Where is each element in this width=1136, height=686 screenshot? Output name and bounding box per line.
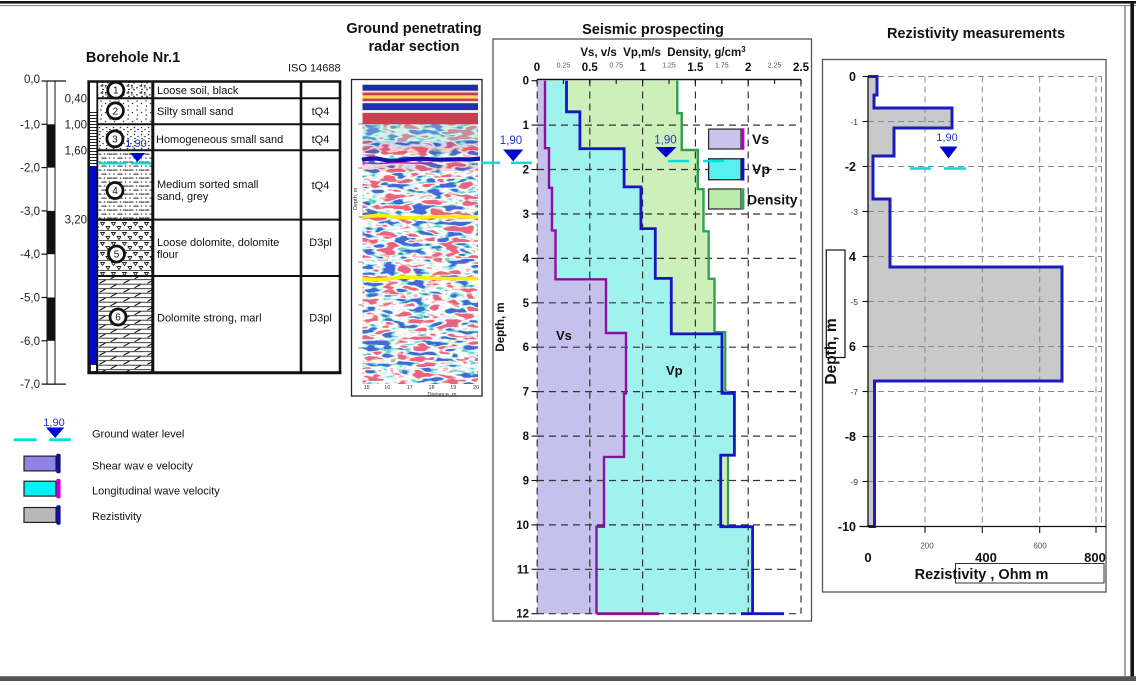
svg-text:1,90: 1,90 <box>500 135 522 147</box>
svg-text:Depth, m: Depth, m <box>353 187 359 210</box>
svg-text:1,90: 1,90 <box>43 417 64 429</box>
svg-text:-1: -1 <box>850 117 858 127</box>
svg-text:0: 0 <box>534 62 540 74</box>
svg-text:Seismic prospecting: Seismic prospecting <box>582 22 724 38</box>
svg-text:Ground penetrating: Ground penetrating <box>346 21 481 37</box>
svg-text:Longitudinal wave velocity: Longitudinal wave velocity <box>92 486 220 498</box>
svg-text:19: 19 <box>450 385 456 391</box>
svg-text:1: 1 <box>523 120 530 132</box>
svg-text:1,60: 1,60 <box>65 145 87 157</box>
svg-text:-9: -9 <box>850 477 858 487</box>
svg-text:15: 15 <box>364 385 370 391</box>
svg-text:2: 2 <box>745 62 751 74</box>
svg-text:2.25: 2.25 <box>768 63 782 70</box>
svg-text:5: 5 <box>114 250 120 261</box>
svg-text:17: 17 <box>407 385 413 391</box>
svg-text:Borehole Nr.1: Borehole Nr.1 <box>86 50 180 66</box>
svg-text:0,40: 0,40 <box>65 93 87 105</box>
svg-text:4: 4 <box>523 253 530 265</box>
svg-text:sand, grey: sand, grey <box>157 191 209 203</box>
svg-text:Ground water level: Ground water level <box>92 429 184 441</box>
svg-text:Distance, m: Distance, m <box>427 392 456 398</box>
svg-text:8: 8 <box>523 431 530 443</box>
svg-text:1.5: 1.5 <box>687 62 704 74</box>
svg-text:16: 16 <box>384 385 390 391</box>
svg-text:Homogeneous small sand: Homogeneous small sand <box>156 134 283 146</box>
svg-text:flour: flour <box>157 249 179 261</box>
svg-text:Vp: Vp <box>752 161 770 177</box>
svg-text:Shear wav e velocity: Shear wav e velocity <box>92 461 193 473</box>
svg-text:4: 4 <box>849 250 856 264</box>
svg-text:3: 3 <box>112 134 118 145</box>
svg-text:-2,0: -2,0 <box>20 163 40 175</box>
svg-text:1,90: 1,90 <box>125 138 146 150</box>
svg-text:Loose dolomite, dolomite: Loose dolomite, dolomite <box>157 237 279 249</box>
svg-text:Depth, m: Depth, m <box>823 318 840 384</box>
svg-text:Medium sorted small: Medium sorted small <box>157 179 258 191</box>
svg-text:1,90: 1,90 <box>936 132 957 144</box>
svg-text:-2: -2 <box>845 160 856 174</box>
svg-text:1,00: 1,00 <box>65 119 87 131</box>
svg-text:0: 0 <box>523 76 529 88</box>
svg-text:6: 6 <box>849 340 856 354</box>
svg-text:10: 10 <box>516 520 529 532</box>
svg-text:400: 400 <box>975 550 997 565</box>
svg-text:D3pl: D3pl <box>309 313 332 325</box>
svg-text:2: 2 <box>113 106 119 117</box>
svg-text:Depth, m: Depth, m <box>495 302 507 351</box>
svg-text:Vs, v/s Vp,m/s Density, g/cm: Vs, v/s Vp,m/s Density, g/cm3 <box>580 45 746 60</box>
svg-text:9: 9 <box>523 476 529 488</box>
svg-text:800: 800 <box>1084 550 1106 565</box>
svg-text:Vs: Vs <box>752 131 769 147</box>
svg-text:7: 7 <box>523 387 529 399</box>
svg-text:600: 600 <box>1033 542 1047 551</box>
svg-text:6: 6 <box>115 313 121 324</box>
svg-text:11: 11 <box>517 564 530 576</box>
svg-text:-8: -8 <box>845 430 856 444</box>
svg-text:6: 6 <box>523 342 529 354</box>
svg-text:0.25: 0.25 <box>557 63 571 70</box>
svg-text:0: 0 <box>864 550 871 565</box>
svg-text:2.5: 2.5 <box>793 62 810 74</box>
svg-text:1: 1 <box>639 62 646 74</box>
svg-text:1.25: 1.25 <box>662 63 676 70</box>
svg-text:-6,0: -6,0 <box>20 336 40 348</box>
svg-text:12: 12 <box>516 609 529 621</box>
svg-text:radar section: radar section <box>368 39 459 55</box>
svg-text:5: 5 <box>523 298 530 310</box>
svg-text:Rezistivity: Rezistivity <box>92 511 142 523</box>
svg-text:-5: -5 <box>850 297 858 307</box>
svg-text:-7: -7 <box>850 387 858 397</box>
svg-text:tQ4: tQ4 <box>312 134 330 146</box>
svg-text:Dolomite strong, marl: Dolomite strong, marl <box>157 313 262 325</box>
svg-text:-10: -10 <box>838 520 856 534</box>
svg-text:-4,0: -4,0 <box>20 249 40 261</box>
svg-text:4: 4 <box>112 186 118 197</box>
svg-text:3: 3 <box>523 209 529 221</box>
svg-text:-5,0: -5,0 <box>20 293 40 305</box>
svg-text:Rezistivity measurements: Rezistivity measurements <box>887 26 1065 42</box>
svg-text:1: 1 <box>113 86 119 97</box>
svg-text:Density: Density <box>747 192 798 208</box>
svg-text:3,20: 3,20 <box>65 215 87 227</box>
svg-text:Vp: Vp <box>666 363 683 378</box>
svg-text:20: 20 <box>473 385 479 391</box>
svg-text:-1,0: -1,0 <box>20 119 40 131</box>
svg-text:tQ4: tQ4 <box>312 180 330 192</box>
svg-text:Silty small sand: Silty small sand <box>157 106 233 118</box>
svg-text:-7,0: -7,0 <box>20 379 40 391</box>
svg-text:0: 0 <box>849 70 856 84</box>
svg-text:0,0: 0,0 <box>24 74 40 86</box>
svg-text:1.75: 1.75 <box>715 63 729 70</box>
svg-text:D3pl: D3pl <box>309 237 332 249</box>
svg-text:-3: -3 <box>850 207 858 217</box>
svg-text:2: 2 <box>523 165 529 177</box>
svg-text:Vs: Vs <box>556 328 572 343</box>
svg-text:tQ4: tQ4 <box>312 106 330 118</box>
svg-text:ISO 14688: ISO 14688 <box>288 63 341 75</box>
svg-text:-3,0: -3,0 <box>20 206 40 218</box>
svg-text:200: 200 <box>920 542 934 551</box>
svg-text:1,90: 1,90 <box>654 135 676 147</box>
svg-text:18: 18 <box>428 385 434 391</box>
svg-text:Loose soil, black: Loose soil, black <box>157 85 239 97</box>
svg-text:0.75: 0.75 <box>609 63 623 70</box>
svg-text:0.5: 0.5 <box>582 62 599 74</box>
svg-text:Rezistivity , Ohm m: Rezistivity , Ohm m <box>915 567 1049 583</box>
